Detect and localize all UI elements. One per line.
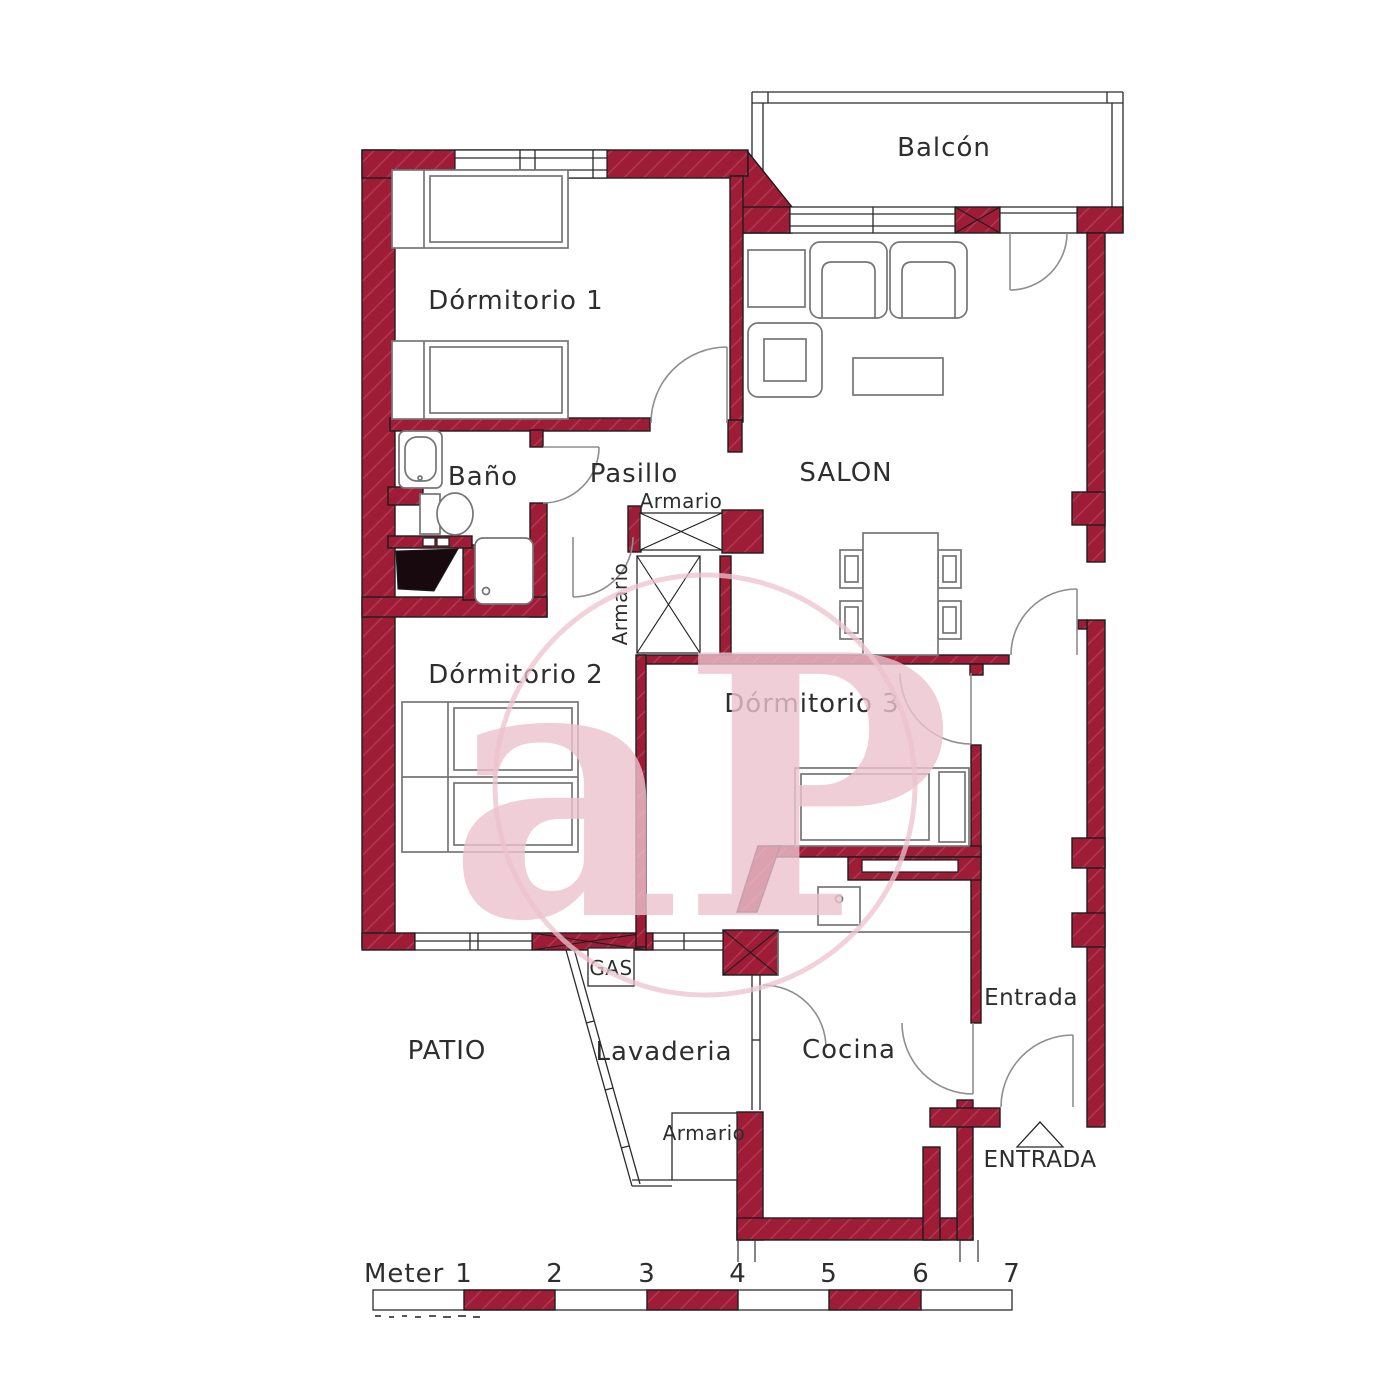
living-room-door bbox=[1011, 589, 1077, 655]
label-patio: PATIO bbox=[408, 1036, 487, 1066]
floor-plan-drawing: Balcón Dórmitorio 1 Baño Pasillo SALON D… bbox=[0, 0, 1400, 1400]
label-balcony: Balcón bbox=[897, 133, 991, 163]
label-bedroom1: Dórmitorio 1 bbox=[428, 286, 603, 316]
living-room-furniture bbox=[748, 242, 967, 397]
scale-tick-1: 1 bbox=[455, 1259, 473, 1289]
floor-plan-page: Balcón Dórmitorio 1 Baño Pasillo SALON D… bbox=[0, 0, 1400, 1400]
scale-tick-6: 6 bbox=[912, 1259, 930, 1289]
scale-tick-3: 3 bbox=[638, 1259, 656, 1289]
scale-tick-5: 5 bbox=[820, 1259, 838, 1289]
watermark-logo-text: aP bbox=[448, 577, 952, 1000]
scale-labels: Meter 1 2 3 4 5 6 7 bbox=[364, 1259, 1021, 1289]
kitchen-door bbox=[902, 1023, 973, 1094]
label-closet-top: Armario bbox=[640, 489, 723, 513]
bedroom1-door bbox=[651, 347, 727, 423]
label-entry-hall: Entrada bbox=[984, 985, 1078, 1011]
label-hallway: Pasillo bbox=[590, 459, 679, 489]
label-entrance-arrow: ENTRADA bbox=[983, 1147, 1096, 1173]
scale-bar bbox=[373, 1290, 1012, 1317]
illegible-ref-marks bbox=[375, 1316, 480, 1317]
label-kitchen: Cocina bbox=[802, 1035, 896, 1065]
label-bathroom: Baño bbox=[448, 462, 518, 492]
scale-tick-4: 4 bbox=[729, 1259, 747, 1289]
label-laundry: Lavaderia bbox=[595, 1037, 732, 1067]
scale-tick-2: 2 bbox=[546, 1259, 564, 1289]
entrance-door bbox=[1001, 1035, 1073, 1107]
agency-watermark: aP bbox=[448, 575, 952, 1000]
scale-tick-7: 7 bbox=[1003, 1259, 1021, 1289]
label-closet-bottom: Armario bbox=[663, 1121, 746, 1145]
label-living-room: SALON bbox=[799, 458, 892, 488]
entrance-arrow-icon bbox=[1017, 1122, 1063, 1147]
scale-unit: Meter bbox=[364, 1259, 444, 1289]
measure-ticks bbox=[738, 1240, 978, 1262]
balcony-door bbox=[1010, 233, 1067, 290]
